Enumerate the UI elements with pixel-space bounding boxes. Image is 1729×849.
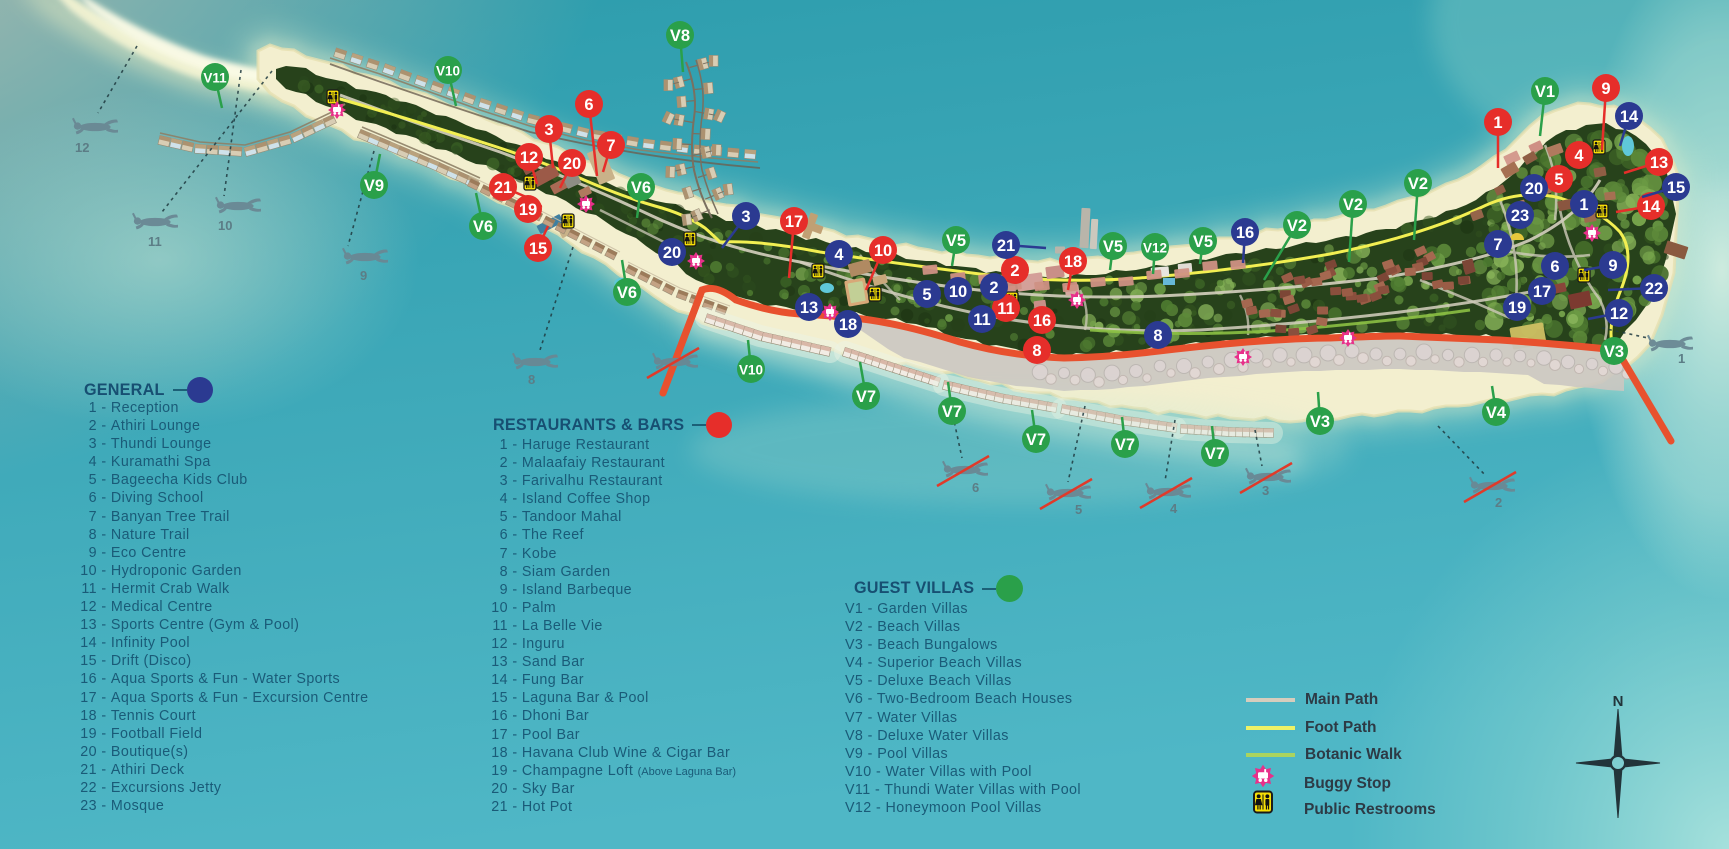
- svg-text:20: 20: [1525, 180, 1543, 198]
- svg-text:18: 18: [1064, 253, 1082, 271]
- svg-text:6: 6: [1550, 258, 1559, 276]
- svg-text:V6: V6: [617, 284, 637, 302]
- svg-text:V6: V6: [473, 218, 493, 236]
- svg-text:V11: V11: [203, 71, 227, 86]
- svg-text:5: 5: [1075, 502, 1082, 517]
- svg-text:5: 5: [922, 286, 931, 304]
- svg-text:V2: V2: [1343, 196, 1363, 214]
- svg-text:9: 9: [1601, 80, 1610, 98]
- svg-text:V1: V1: [1535, 83, 1555, 101]
- svg-text:2: 2: [1010, 262, 1019, 280]
- svg-text:18: 18: [839, 316, 857, 334]
- svg-text:V9: V9: [364, 177, 384, 195]
- svg-text:21: 21: [997, 237, 1015, 255]
- svg-text:1: 1: [1579, 196, 1588, 214]
- svg-text:8: 8: [1153, 327, 1162, 345]
- svg-text:V2: V2: [1287, 217, 1307, 235]
- svg-text:14: 14: [1620, 108, 1639, 126]
- svg-text:19: 19: [519, 201, 537, 219]
- svg-text:V5: V5: [1193, 233, 1213, 251]
- svg-text:N: N: [1613, 693, 1624, 710]
- svg-text:21: 21: [494, 179, 512, 197]
- svg-text:12: 12: [1610, 305, 1628, 323]
- svg-text:V3: V3: [1604, 343, 1624, 361]
- svg-text:11: 11: [148, 234, 162, 249]
- svg-text:10: 10: [874, 242, 892, 260]
- svg-text:20: 20: [663, 244, 681, 262]
- svg-text:12: 12: [520, 149, 538, 167]
- svg-text:11: 11: [997, 300, 1014, 318]
- svg-text:V5: V5: [946, 232, 966, 250]
- svg-text:11: 11: [973, 311, 990, 329]
- svg-text:6: 6: [584, 96, 593, 114]
- svg-text:15: 15: [529, 240, 547, 258]
- svg-text:V7: V7: [1115, 436, 1135, 454]
- svg-text:17: 17: [785, 213, 803, 231]
- svg-text:3: 3: [544, 121, 553, 139]
- svg-text:V5: V5: [1103, 238, 1123, 256]
- svg-text:6: 6: [972, 480, 979, 495]
- svg-text:10: 10: [218, 218, 232, 233]
- svg-text:13: 13: [1650, 154, 1668, 172]
- svg-text:12: 12: [75, 140, 89, 155]
- svg-text:20: 20: [563, 155, 581, 173]
- svg-text:5: 5: [1554, 171, 1563, 189]
- svg-text:19: 19: [1508, 299, 1526, 317]
- svg-text:V12: V12: [1143, 241, 1167, 256]
- svg-text:7: 7: [1493, 236, 1502, 254]
- svg-text:V7: V7: [1205, 445, 1225, 463]
- svg-text:22: 22: [1645, 280, 1663, 298]
- svg-text:V6: V6: [631, 179, 651, 197]
- svg-text:V3: V3: [1310, 413, 1330, 431]
- svg-text:3: 3: [741, 208, 750, 226]
- svg-text:9: 9: [360, 268, 367, 283]
- svg-text:V4: V4: [1486, 404, 1507, 422]
- svg-text:V7: V7: [1026, 431, 1046, 449]
- svg-text:1: 1: [1678, 351, 1685, 366]
- svg-text:23: 23: [1511, 207, 1529, 225]
- svg-text:4: 4: [834, 246, 844, 264]
- svg-text:16: 16: [1033, 312, 1051, 330]
- svg-text:V7: V7: [942, 403, 962, 421]
- svg-text:2: 2: [989, 279, 998, 297]
- svg-text:7: 7: [606, 137, 615, 155]
- svg-text:16: 16: [1236, 224, 1254, 242]
- svg-text:13: 13: [800, 299, 818, 317]
- svg-text:V10: V10: [739, 363, 763, 378]
- svg-text:8: 8: [1032, 342, 1041, 360]
- svg-text:V8: V8: [670, 27, 690, 45]
- svg-text:9: 9: [1608, 257, 1617, 275]
- svg-text:8: 8: [528, 372, 535, 387]
- svg-text:4: 4: [1574, 147, 1584, 165]
- svg-text:V2: V2: [1408, 175, 1428, 193]
- svg-text:14: 14: [1642, 198, 1661, 216]
- svg-text:1: 1: [1493, 114, 1502, 132]
- svg-text:3: 3: [1262, 483, 1269, 498]
- svg-text:4: 4: [1170, 501, 1178, 516]
- svg-text:15: 15: [1667, 179, 1685, 197]
- svg-text:17: 17: [1533, 283, 1551, 301]
- svg-text:V7: V7: [856, 388, 876, 406]
- svg-text:10: 10: [949, 283, 967, 301]
- svg-text:V10: V10: [436, 64, 460, 79]
- svg-text:2: 2: [1495, 495, 1502, 510]
